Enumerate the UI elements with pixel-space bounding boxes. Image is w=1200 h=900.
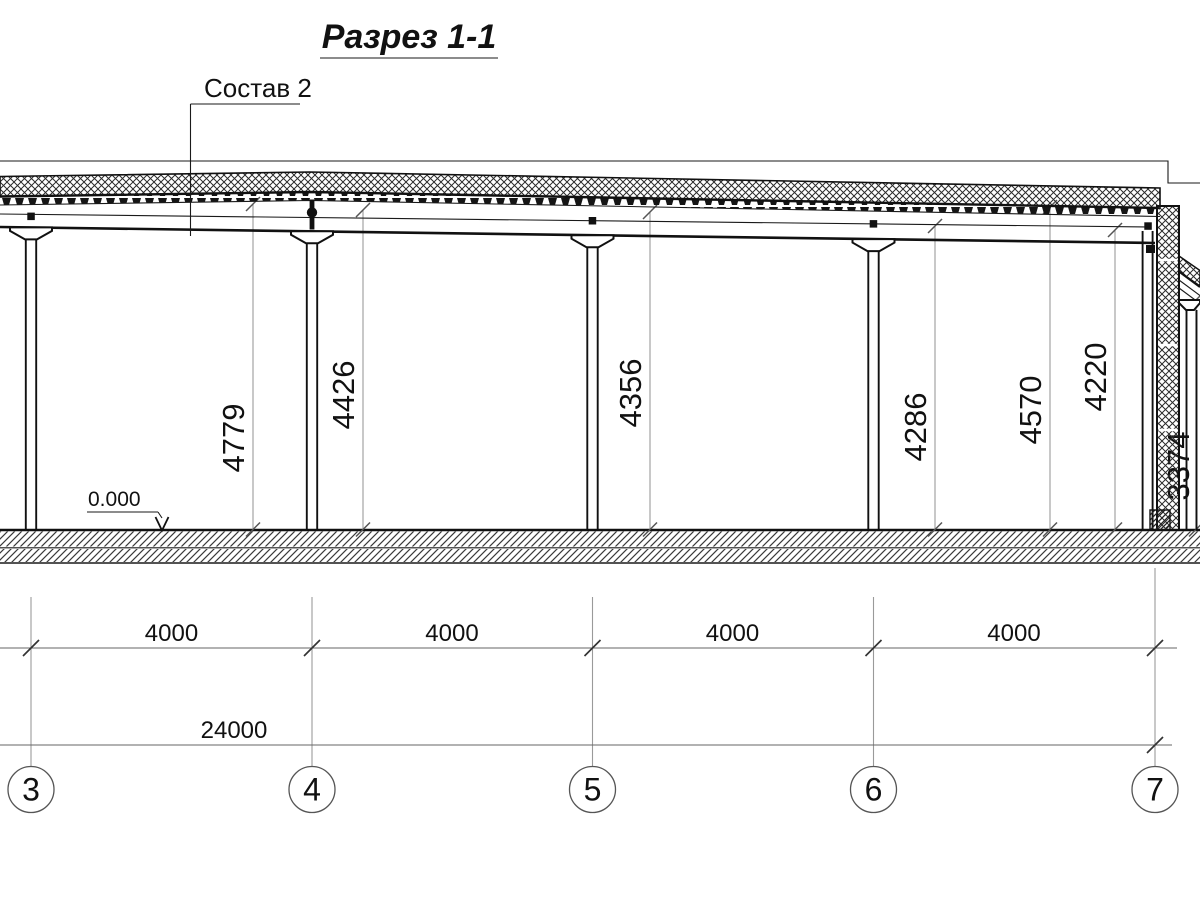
- vdim-4779: 4779: [216, 197, 260, 537]
- vdim-4286: 4286: [898, 219, 942, 537]
- vdim-4220: 4220: [1078, 223, 1122, 537]
- floor-hatch-band-top: [0, 532, 1200, 547]
- level-mark-leader: [158, 512, 162, 518]
- axis-number: 4: [303, 772, 321, 808]
- section-drawing-canvas: 4779 4426 4356 4286 4570: [0, 0, 1200, 900]
- axis-bubble-3: 3: [8, 767, 54, 813]
- column-axis6: [853, 239, 895, 530]
- end-wall-hatch: [1157, 206, 1179, 530]
- tie-node-axis3: [27, 213, 35, 221]
- bay-dimension-label: 4000: [425, 620, 478, 647]
- roof-tie-line: [0, 214, 1148, 227]
- wall-plinth-hatch: [1150, 510, 1170, 530]
- drawing-title: Разрез 1-1: [322, 18, 497, 56]
- floor-hatch-band-bottom: [0, 549, 1200, 562]
- vdim-label: 4356: [613, 359, 648, 428]
- vdim-label: 4286: [898, 393, 933, 462]
- section-drawing: 4779 4426 4356 4286 4570: [0, 0, 1200, 900]
- column-capital: [10, 227, 52, 239]
- vdim-4356: 4356: [613, 205, 657, 537]
- vdim-label: 4570: [1013, 376, 1048, 445]
- columns: [10, 227, 895, 530]
- level-mark-arrow: [156, 517, 169, 531]
- vdim-4426: 4426: [326, 203, 370, 537]
- column-capital: [572, 235, 614, 247]
- annex-column-capital: [1179, 300, 1200, 310]
- floor-slab: [0, 530, 1200, 563]
- bay-dimension-label: 4000: [987, 620, 1040, 647]
- axis-bubble-4: 4: [289, 767, 335, 813]
- vdim-label: 4426: [326, 361, 361, 430]
- level-mark-label: 0.000: [88, 488, 141, 511]
- bay-dimension-label: 4000: [706, 620, 759, 647]
- callout-label: Состав 2: [204, 73, 312, 103]
- axis-number: 3: [22, 772, 40, 808]
- ridge-joint-pin: [307, 207, 317, 217]
- vdim-label: 4220: [1078, 343, 1113, 412]
- axis-bubble-7: 7: [1132, 767, 1178, 813]
- vertical-dimensions: 4779 4426 4356 4286 4570: [216, 197, 1200, 537]
- column-axis3: [10, 227, 52, 530]
- roof-assembly: [0, 161, 1200, 243]
- vdim-4570: 4570: [1013, 200, 1057, 537]
- axis-number: 5: [584, 772, 602, 808]
- wall-bracket: [1146, 245, 1155, 253]
- axis-grid: 4000 4000 4000 4000 24000 3 4 5 6 7: [0, 568, 1178, 813]
- column-capital: [291, 231, 333, 243]
- axis-number: 6: [865, 772, 883, 808]
- axis-number: 7: [1146, 772, 1164, 808]
- vdim-label: 4779: [216, 404, 251, 473]
- axis-bubble-5: 5: [570, 767, 616, 813]
- axis-bubble-6: 6: [851, 767, 897, 813]
- column-capital: [853, 239, 895, 251]
- tie-node-axis6: [870, 220, 878, 228]
- bay-dimension-label: 4000: [145, 620, 198, 647]
- tie-node-axis5: [589, 217, 597, 225]
- overall-dimension-label: 24000: [201, 717, 268, 744]
- column-axis5: [572, 235, 614, 530]
- tie-node-wall: [1144, 222, 1152, 230]
- annotations: Разрез 1-1 Состав 2 0.000: [87, 18, 498, 531]
- annex-roof-hatch: [1179, 256, 1200, 286]
